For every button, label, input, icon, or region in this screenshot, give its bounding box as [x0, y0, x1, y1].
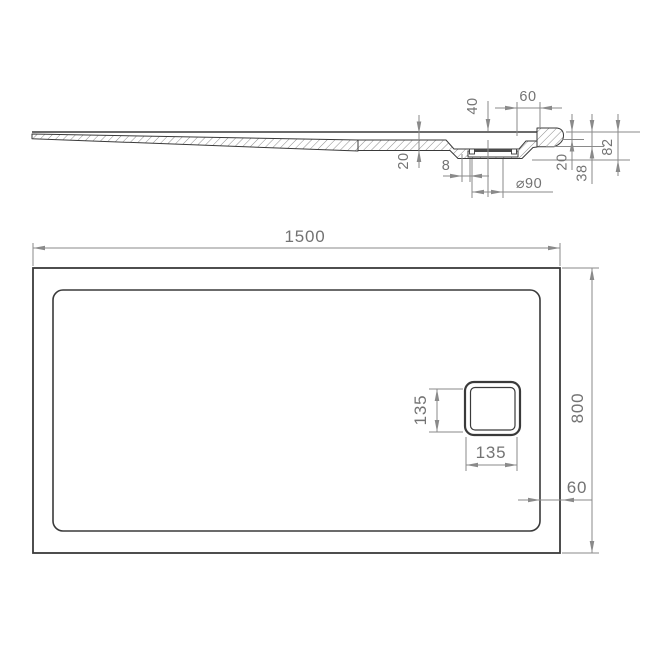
- dim-800-label: 800: [568, 393, 587, 424]
- dim-135-horizontal-label: 135: [476, 443, 507, 462]
- dim-1500: 1500: [33, 227, 560, 266]
- sloped-floor-section: [32, 134, 358, 151]
- dim-60-top-label: 60: [519, 89, 536, 105]
- drain-flange-right: [512, 149, 517, 154]
- dim-82-label: 82: [600, 138, 616, 155]
- tray-inner-rect: [53, 290, 540, 531]
- dim-heights-right: 20 38 82: [532, 114, 640, 184]
- dim-20-edge-label: 20: [555, 153, 571, 170]
- drain-waste-section: [468, 149, 518, 158]
- dim-800: 800: [562, 268, 599, 553]
- side-section-view: 40 60 20 8: [32, 89, 640, 198]
- dim-40-label: 40: [465, 97, 481, 114]
- drain-cover: [474, 149, 512, 153]
- drawing-canvas: 40 60 20 8: [0, 0, 650, 650]
- dim-20-floor-label: 20: [396, 152, 412, 169]
- dim-38-label: 38: [575, 164, 591, 181]
- dim-40: 40: [465, 97, 490, 197]
- dim-diameter-90-label: ⌀90: [516, 176, 542, 192]
- dim-1500-label: 1500: [284, 227, 325, 246]
- plan-view: 1500 800 135 135: [33, 227, 599, 553]
- dim-diameter-90: ⌀90: [472, 159, 553, 198]
- dim-135-vertical-label: 135: [411, 395, 430, 426]
- drain-flange-left: [470, 149, 475, 154]
- shower-tray-drawing: 40 60 20 8: [0, 0, 650, 650]
- edge-rim-section: [537, 128, 564, 147]
- dim-8-label: 8: [442, 158, 451, 174]
- dim-60-border-label: 60: [567, 478, 588, 497]
